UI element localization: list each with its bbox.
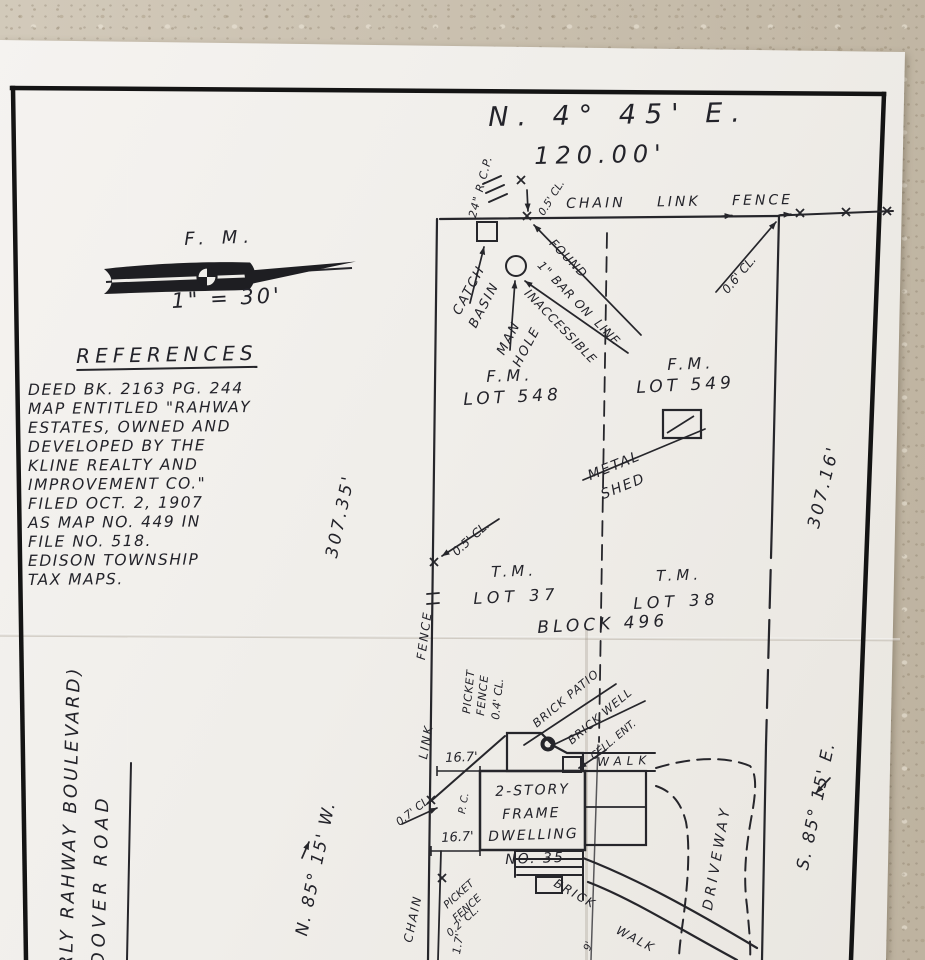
dwelling-label-3: DWELLING bbox=[488, 827, 579, 844]
chain-link-fence-label: CHAIN LINK FENCE bbox=[566, 193, 793, 211]
lot-549-label-1: F.M. bbox=[667, 355, 715, 373]
top-bearing: N. 4° 45' E. bbox=[488, 99, 749, 131]
references-line: TAX MAPS. bbox=[28, 569, 251, 590]
references-line: FILED OCT. 2, 1907 bbox=[28, 493, 251, 514]
catch-basin-symbol bbox=[477, 222, 497, 241]
references-line: ESTATES, OWNED AND bbox=[28, 417, 251, 438]
dim-lower: 16.7' bbox=[441, 830, 474, 845]
references-line: FILE NO. 518. bbox=[28, 531, 251, 552]
references-line: KLINE REALTY AND bbox=[28, 455, 251, 476]
brick-walk-path bbox=[583, 858, 757, 960]
lot-548-label-1: F.M. bbox=[486, 367, 534, 385]
compass-label: F. M. bbox=[184, 229, 255, 249]
references-line: MAP ENTITLED "RAHWAY bbox=[28, 398, 251, 419]
references-line: EDISON TOWNSHIP bbox=[28, 550, 251, 571]
dwelling-label-4: NO. 35 bbox=[505, 851, 565, 867]
compass-scale: 1" = 30' bbox=[171, 285, 282, 312]
driveway-outline bbox=[656, 759, 755, 960]
references-line: IMPROVEMENT CO." bbox=[28, 474, 251, 495]
lot-37-label-1: T.M. bbox=[491, 563, 537, 580]
references-line: AS MAP NO. 449 IN bbox=[28, 512, 251, 533]
dim-upper: 16.7' bbox=[445, 751, 478, 765]
dwelling-label-2: FRAME bbox=[502, 806, 561, 822]
references-line: DEED BK. 2163 PG. 244 bbox=[28, 379, 251, 400]
lot-38-label-2: LOT 38 bbox=[633, 591, 720, 611]
walk-label: WALK bbox=[597, 754, 651, 768]
survey-photo: N. 4° 45' E. 120.00' CHAIN LINK FENCE 24… bbox=[0, 0, 925, 960]
lot-37-label-2: LOT 37 bbox=[473, 586, 560, 606]
brick-well-symbol bbox=[543, 739, 554, 750]
top-distance: 120.00' bbox=[534, 142, 667, 168]
street-name: DOVER ROAD bbox=[90, 793, 113, 960]
dwelling-label-1: 2-STORY bbox=[495, 782, 570, 799]
references-line: DEVELOPED BY THE bbox=[28, 436, 251, 457]
references-title: REFERENCES bbox=[76, 343, 258, 371]
dim-fence: 1.7' bbox=[451, 933, 465, 955]
lot-38-label-1: T.M. bbox=[656, 567, 702, 584]
references-block: DEED BK. 2163 PG. 244 MAP ENTITLED "RAHW… bbox=[28, 380, 251, 589]
manhole-symbol bbox=[506, 256, 526, 276]
